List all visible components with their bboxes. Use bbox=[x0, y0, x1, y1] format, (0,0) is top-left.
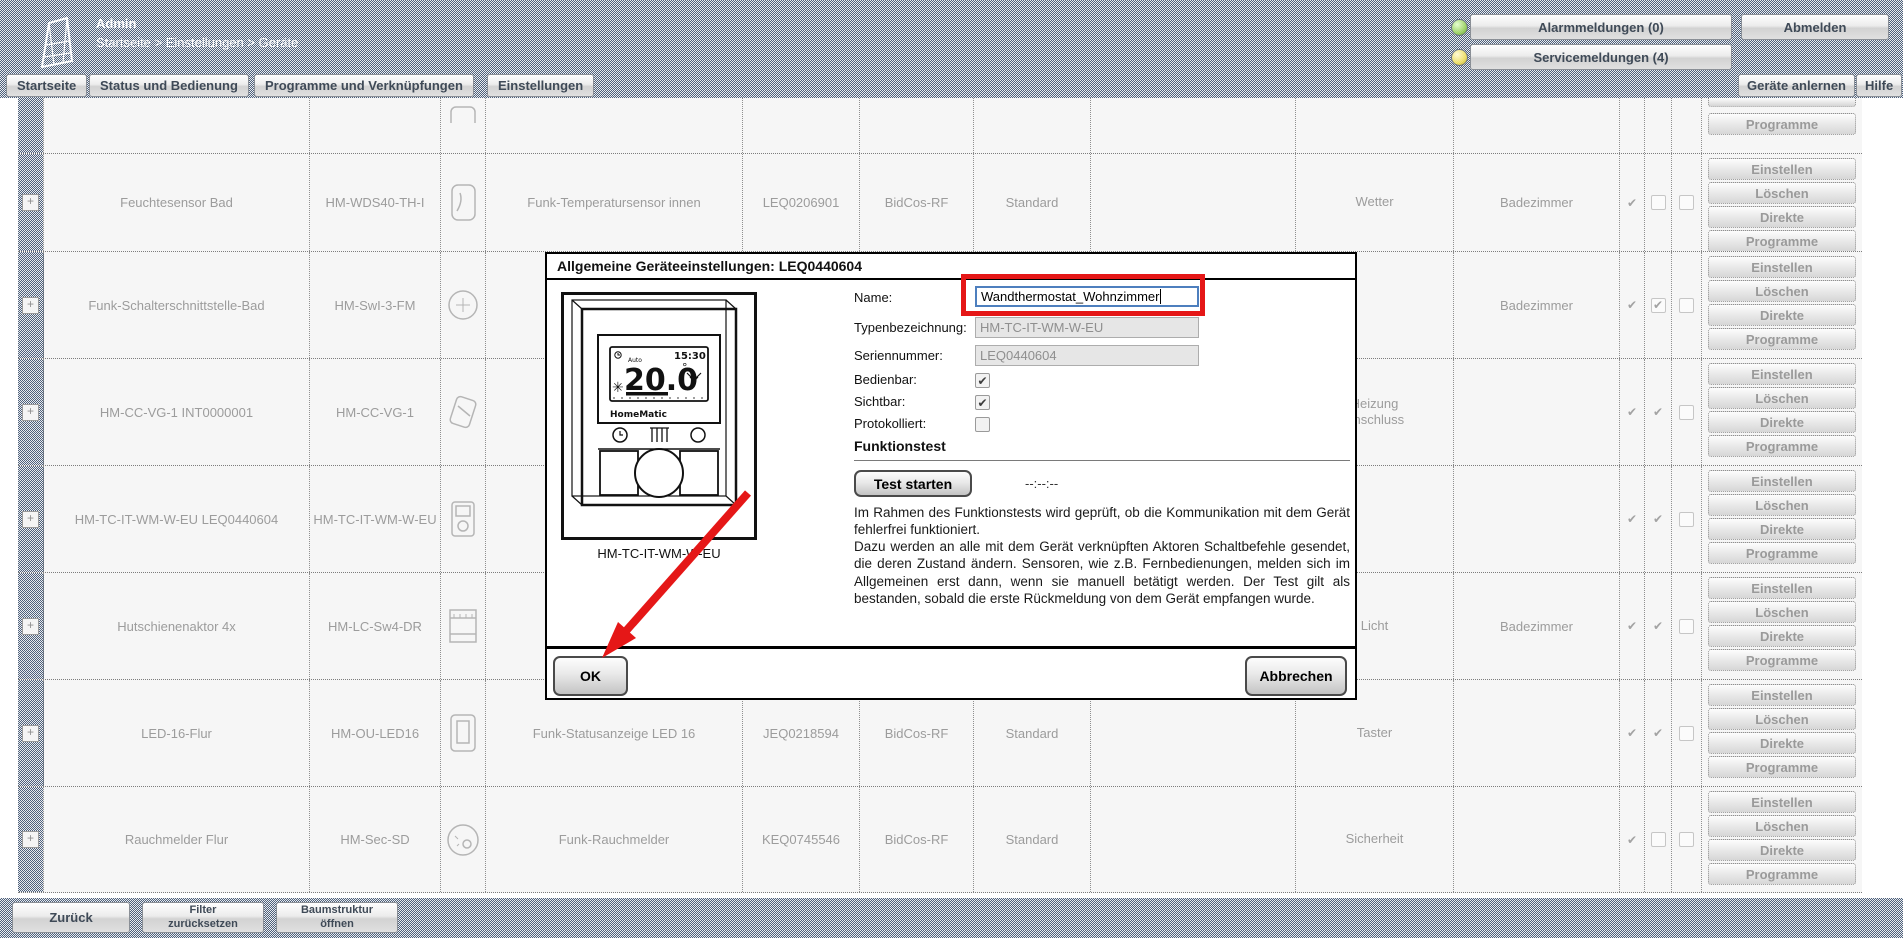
alarm-status-led bbox=[1451, 19, 1468, 36]
alarm-messages-button[interactable]: Alarmmeldungen (0) bbox=[1470, 14, 1732, 40]
device-type-caption: HM-TC-IT-WM-W-EU bbox=[561, 546, 757, 561]
action-programme-button[interactable]: Programme bbox=[1708, 863, 1856, 885]
function-test-description: Im Rahmen des Funktionstests wird geprüf… bbox=[854, 504, 1350, 607]
action-programme-button[interactable]: Programme bbox=[1708, 113, 1856, 135]
serial-label: Seriennummer: bbox=[854, 348, 943, 363]
table-row-partial: Programme bbox=[18, 98, 1862, 154]
action-direkte-button[interactable]: Direkte bbox=[1708, 518, 1856, 540]
operable-label: Bedienbar: bbox=[854, 372, 917, 387]
reset-filter-button[interactable]: Filter zurücksetzen bbox=[142, 902, 264, 933]
type-field: HM-TC-IT-WM-W-EU bbox=[975, 317, 1199, 338]
expand-row-button[interactable]: + bbox=[22, 831, 39, 848]
open-tree-button[interactable]: Baumstruktur öffnen bbox=[276, 902, 398, 933]
switch-interface-icon bbox=[443, 283, 483, 327]
action-programme-button[interactable]: Programme bbox=[1708, 230, 1856, 252]
logged-checkbox bbox=[1679, 195, 1694, 210]
nav-einstellungen[interactable]: Einstellungen bbox=[487, 74, 594, 97]
action-einstellen-button[interactable]: Einstellen bbox=[1708, 256, 1856, 278]
device-name-cell bbox=[44, 98, 310, 153]
device-settings-dialog: Allgemeine Geräteeinstellungen: LEQ04406… bbox=[545, 252, 1357, 700]
nav-status-und-bedienung[interactable]: Status und Bedienung bbox=[89, 74, 249, 97]
action-programme-button[interactable]: Programme bbox=[1708, 328, 1856, 350]
operable-check: ✔ bbox=[1627, 197, 1637, 209]
action-einstellen-button[interactable]: Einstellen bbox=[1708, 577, 1856, 599]
action-programme-button[interactable]: Programme bbox=[1708, 756, 1856, 778]
action-button-partial[interactable] bbox=[1708, 98, 1856, 107]
nav-startseite[interactable]: Startseite bbox=[6, 74, 87, 97]
action-direkte-button[interactable]: Direkte bbox=[1708, 206, 1856, 228]
action-loeschen-button[interactable]: Löschen bbox=[1708, 815, 1856, 837]
device-name-cell: HM-TC-IT-WM-W-EU LEQ0440604 bbox=[44, 466, 310, 572]
service-status-led bbox=[1451, 49, 1468, 66]
user-label: Admin bbox=[96, 16, 136, 31]
action-direkte-button[interactable]: Direkte bbox=[1708, 304, 1856, 326]
action-einstellen-button[interactable]: Einstellen bbox=[1708, 470, 1856, 492]
expand-row-button[interactable]: + bbox=[22, 618, 39, 635]
expand-row-button[interactable]: + bbox=[22, 511, 39, 528]
action-direkte-button[interactable]: Direkte bbox=[1708, 732, 1856, 754]
action-programme-button[interactable]: Programme bbox=[1708, 435, 1856, 457]
breadcrumb: Startseite > Einstellungen > Geräte bbox=[96, 35, 298, 50]
name-label: Name: bbox=[854, 290, 892, 305]
action-programme-button[interactable]: Programme bbox=[1708, 542, 1856, 564]
logged-checkbox[interactable] bbox=[975, 417, 990, 432]
expand-row-button[interactable]: + bbox=[22, 297, 39, 314]
device-illustration-thermostat: Auto 15:30 ✳ 20.0 ° HomeMatic bbox=[564, 295, 754, 537]
action-loeschen-button[interactable]: Löschen bbox=[1708, 182, 1856, 204]
action-loeschen-button[interactable]: Löschen bbox=[1708, 280, 1856, 302]
ok-button[interactable]: OK bbox=[553, 656, 628, 696]
heating-group-icon bbox=[443, 390, 483, 434]
device-name-cell: Hutschienenaktor 4x bbox=[44, 573, 310, 679]
action-loeschen-button[interactable]: Löschen bbox=[1708, 708, 1856, 730]
led-status-display-icon bbox=[443, 711, 483, 755]
service-messages-button[interactable]: Servicemeldungen (4) bbox=[1470, 44, 1732, 70]
serial-field: LEQ0440604 bbox=[975, 345, 1199, 366]
homematic-ccu-screen: Admin Startseite > Einstellungen > Gerät… bbox=[0, 0, 1903, 938]
action-programme-button[interactable]: Programme bbox=[1708, 649, 1856, 671]
start-test-button[interactable]: Test starten bbox=[854, 470, 972, 497]
device-name-cell: Feuchtesensor Bad bbox=[44, 154, 310, 251]
dialog-title: Allgemeine Geräteeinstellungen: LEQ04406… bbox=[547, 254, 1355, 280]
operable-checkbox[interactable]: ✔ bbox=[975, 373, 990, 388]
expand-row-button[interactable]: + bbox=[22, 194, 39, 211]
action-einstellen-button[interactable]: Einstellen bbox=[1708, 791, 1856, 813]
table-row: + Rauchmelder Flur HM-Sec-SD Funk-Rauchm… bbox=[18, 787, 1862, 893]
action-direkte-button[interactable]: Direkte bbox=[1708, 625, 1856, 647]
dialog-footer-divider bbox=[547, 646, 1355, 649]
action-direkte-button[interactable]: Direkte bbox=[1708, 839, 1856, 861]
logged-label: Protokolliert: bbox=[854, 416, 926, 431]
lcd-time: 15:30 bbox=[674, 351, 706, 362]
section-divider bbox=[854, 460, 1350, 461]
name-input[interactable]: Wandthermostat_Wohnzimmer bbox=[975, 286, 1199, 307]
device-name-cell: Rauchmelder Flur bbox=[44, 787, 310, 892]
din-rail-actuator-icon bbox=[443, 604, 483, 648]
visible-checkbox[interactable]: ✔ bbox=[975, 395, 990, 410]
text-cursor bbox=[1160, 289, 1161, 304]
lcd-degree: ° bbox=[682, 361, 688, 374]
visible-label: Sichtbar: bbox=[854, 394, 905, 409]
function-test-heading: Funktionstest bbox=[854, 438, 946, 454]
homematic-logo bbox=[36, 15, 80, 71]
action-einstellen-button[interactable]: Einstellen bbox=[1708, 363, 1856, 385]
visible-checkbox bbox=[1651, 195, 1666, 210]
smoke-detector-icon bbox=[443, 818, 483, 862]
device-name-cell: Funk-Schalterschnittstelle-Bad bbox=[44, 252, 310, 358]
action-direkte-button[interactable]: Direkte bbox=[1708, 411, 1856, 433]
expand-row-button[interactable]: + bbox=[22, 725, 39, 742]
action-loeschen-button[interactable]: Löschen bbox=[1708, 494, 1856, 516]
device-name-cell: HM-CC-VG-1 INT0000001 bbox=[44, 359, 310, 465]
action-einstellen-button[interactable]: Einstellen bbox=[1708, 684, 1856, 706]
temperature-sensor-icon bbox=[443, 181, 483, 225]
nav-programme-und-verknuepfungen[interactable]: Programme und Verknüpfungen bbox=[254, 74, 474, 97]
table-row: + Feuchtesensor Bad HM-WDS40-TH-I Funk-T… bbox=[18, 154, 1862, 252]
teach-in-devices-button[interactable]: Geräte anlernen bbox=[1738, 74, 1855, 97]
lcd-sun-icon: ✳ bbox=[612, 380, 624, 396]
expand-row-button[interactable]: + bbox=[22, 404, 39, 421]
cancel-button[interactable]: Abbrechen bbox=[1245, 656, 1347, 696]
type-label: Typenbezeichnung: bbox=[854, 320, 967, 335]
action-einstellen-button[interactable]: Einstellen bbox=[1708, 158, 1856, 180]
action-loeschen-button[interactable]: Löschen bbox=[1708, 387, 1856, 409]
help-button[interactable]: Hilfe bbox=[1856, 74, 1902, 97]
test-timer: --:--:-- bbox=[1025, 476, 1058, 491]
brand-label: HomeMatic bbox=[610, 410, 667, 420]
device-icon-partial bbox=[443, 98, 483, 123]
logout-button[interactable]: Abmelden bbox=[1741, 14, 1889, 40]
back-button[interactable]: Zurück bbox=[12, 902, 130, 933]
footer-bar: Zurück Filter zurücksetzen Baumstruktur … bbox=[0, 898, 1903, 938]
device-icon-cell bbox=[441, 98, 486, 153]
wall-thermostat-icon bbox=[443, 497, 483, 541]
device-illustration-frame: Auto 15:30 ✳ 20.0 ° HomeMatic bbox=[561, 292, 757, 540]
action-loeschen-button[interactable]: Löschen bbox=[1708, 601, 1856, 623]
header: Admin Startseite > Einstellungen > Gerät… bbox=[0, 0, 1903, 98]
device-name-cell: LED-16-Flur bbox=[44, 680, 310, 786]
